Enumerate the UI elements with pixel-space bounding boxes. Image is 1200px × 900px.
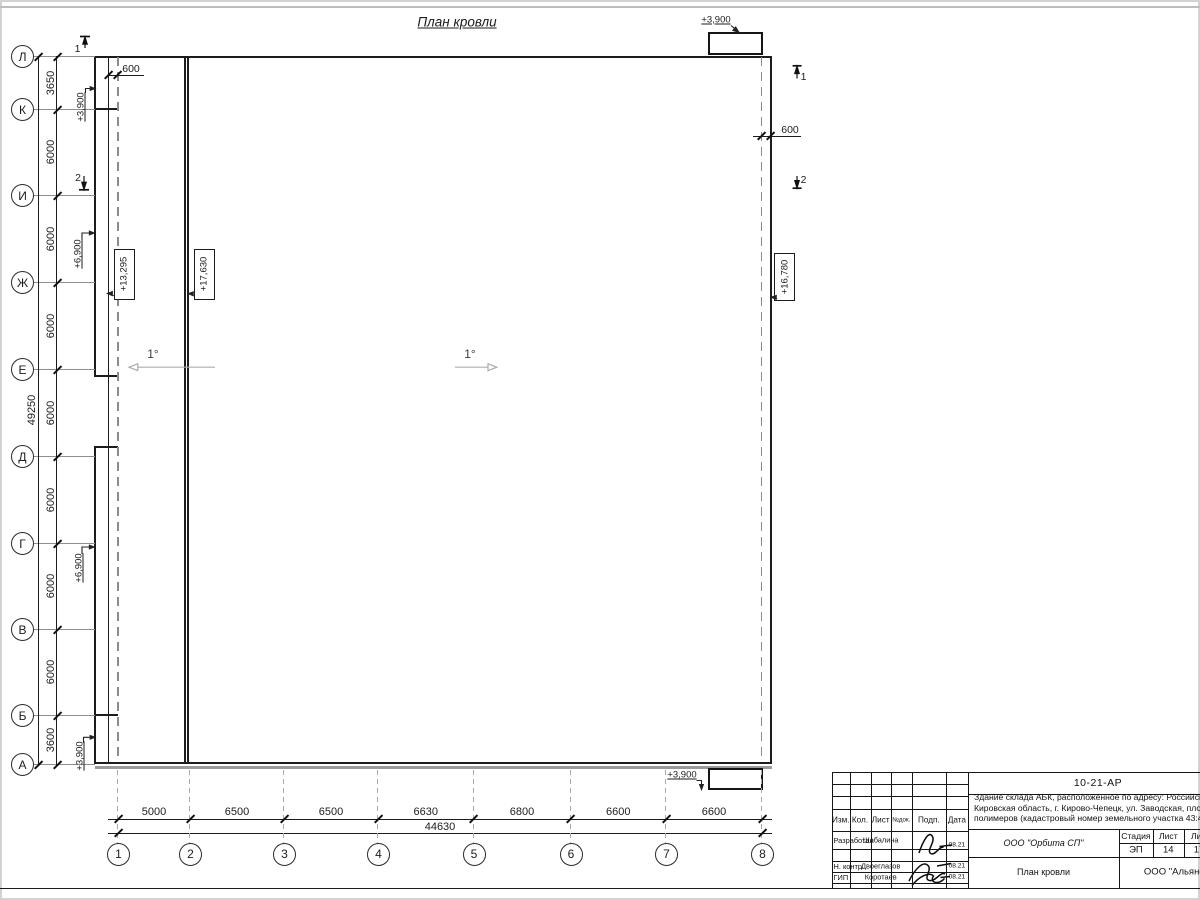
col-dim-label: 6500 (225, 806, 249, 818)
row-axis-label: А (18, 758, 26, 772)
drawing-title: План кровли (417, 15, 496, 30)
dim-600-left-line (107, 75, 144, 76)
col-axis-label: 7 (663, 847, 670, 861)
ext-line-axis-7 (665, 770, 666, 843)
offset-600-left: 600 (122, 63, 140, 75)
row-axis-bubble: В (11, 618, 34, 641)
titleblock-line (832, 809, 968, 810)
tb-desc-line2: Кировская область, г. Кирово-Чепецк, ул.… (974, 803, 1200, 813)
ground-shadow-line (95, 766, 772, 768)
wall-left-main (108, 56, 110, 765)
titleblock-line (968, 829, 1200, 830)
roof-elevation-strip: +13,295 (119, 257, 130, 292)
col-axis-bubble: 6 (560, 843, 583, 866)
col-axis-label: 5 (471, 847, 478, 861)
col-axis-label: 3 (281, 847, 288, 861)
col-axis-bubble: 5 (463, 843, 486, 866)
row-dim-label: 6000 (45, 227, 57, 251)
titleblock-line (832, 831, 968, 832)
wall-step-axis-e (94, 375, 118, 377)
tb-drawing-name: План кровли (1017, 867, 1070, 877)
row-axis-label: Ж (17, 276, 28, 290)
row-dim-label: 6000 (45, 574, 57, 598)
col-dim-label: 6800 (510, 806, 534, 818)
col-axis-bubble: 8 (751, 843, 774, 866)
row-axis-label: Г (19, 537, 26, 551)
axis-line-d (33, 456, 95, 457)
row-axis-bubble: Е (11, 358, 34, 381)
row-axis-bubble: Д (11, 445, 34, 468)
tb-name: Шабалина (863, 835, 899, 844)
row-axis-label: К (19, 103, 26, 117)
col-axis-label: 8 (759, 847, 766, 861)
row-axis-bubble: Г (11, 532, 34, 555)
row-axis-label: Б (19, 709, 27, 723)
slope-arrow-main (455, 364, 497, 371)
wall-right (770, 56, 772, 765)
roof-elevation-low: +16,780 (779, 260, 790, 295)
tb-date: 08.21 (949, 863, 966, 870)
section-mark-1-left: 1 (75, 43, 81, 55)
titleblock-line (1119, 829, 1120, 888)
tb-col-data: Дата (948, 816, 966, 825)
axis-line-i (33, 195, 95, 196)
row-axis-label: Д (18, 450, 26, 464)
col-dim-label: 6600 (702, 806, 726, 818)
roof-elevation-box: +16,780 (774, 253, 795, 301)
offset-600-right: 600 (781, 124, 799, 136)
axis-line-e (33, 369, 95, 370)
tb-date: 08.21 (949, 842, 966, 849)
col-axis-label: 2 (187, 847, 194, 861)
row-dim-label: 3650 (45, 71, 57, 95)
tb-sheets-total: 17 (1194, 844, 1200, 855)
elevation-mid-zh: +6,900 (73, 239, 84, 268)
row-axis-bubble: К (11, 98, 34, 121)
col-dim-label: 5000 (142, 806, 166, 818)
frame-bottom-line (0, 888, 1200, 890)
col-dim-label: 6600 (606, 806, 630, 818)
tb-date: 08.21 (949, 874, 966, 881)
row-axis-bubble: Л (11, 45, 34, 68)
tb-col-ndok: №док. (892, 817, 910, 824)
titleblock-line (968, 857, 1200, 858)
col-axis-label: 4 (375, 847, 382, 861)
axis-line-v (33, 629, 95, 630)
col-dim-label: 6630 (414, 806, 438, 818)
row-axis-bubble: А (11, 753, 34, 776)
col-axis-label: 1 (115, 847, 122, 861)
row-dim-label: 3600 (45, 728, 57, 752)
ext-line-axis-5 (473, 770, 474, 843)
titleblock-line (832, 872, 968, 873)
roof-elevation-box: +17,630 (194, 249, 215, 300)
titleblock-line (832, 772, 1200, 773)
annotation-overlay (0, 0, 1200, 900)
row-dim-label: 6000 (45, 314, 57, 338)
col-axis-bubble: 1 (107, 843, 130, 866)
col-axis-label: 6 (568, 847, 575, 861)
axis-line-b (33, 715, 95, 716)
row-axis-label: Е (18, 363, 26, 377)
tb-name: Двоеглазов (861, 862, 900, 871)
row-dim-label: 6000 (45, 488, 57, 512)
titleblock-line (832, 796, 968, 797)
tb-list-label: Лист (1159, 831, 1178, 841)
tb-col-kol: Кол. (852, 816, 868, 825)
col-total-dim: 44630 (425, 821, 456, 833)
tb-col-podp: Подп. (918, 816, 940, 825)
axis-line-zh (33, 282, 95, 283)
tb-sheet-number: 14 (1163, 844, 1174, 855)
tb-name: Коротаев (865, 873, 897, 882)
tb-desc-line3: полимеров (кадастровый номер земельного … (974, 813, 1200, 823)
axis-line-g (33, 543, 95, 544)
row-axis-label: Л (19, 50, 27, 64)
row-dim-label: 6000 (45, 660, 57, 684)
row-axis-bubble: Б (11, 704, 34, 727)
tb-desc-line1: Здание склада АБК, расположенное по адре… (974, 792, 1200, 802)
slope-label-main: 1° (464, 347, 475, 361)
elevation-entry-k: +3,900 (75, 92, 86, 121)
col-axis-bubble: 3 (273, 843, 296, 866)
row-axis-label: В (18, 623, 26, 637)
tb-col-izm: Изм. (832, 816, 850, 825)
h-dim-line-total (108, 833, 772, 834)
titleblock-line (832, 784, 968, 785)
tb-stage-label: Стадия (1121, 831, 1150, 841)
section-mark-2-left: 2 (75, 172, 81, 184)
axis-8-dashed-line (761, 57, 762, 762)
elevation-entry-a: +3,900 (75, 741, 86, 770)
titleblock-line (832, 849, 968, 850)
section-cut-1-left (80, 37, 90, 49)
wall-left-projection-lower (94, 446, 96, 764)
row-axis-bubble: И (11, 184, 34, 207)
tb-col-list: Лист (872, 816, 890, 825)
tb-doc-number: 10-21-АР (1074, 777, 1122, 789)
wall-step-axis-b (94, 714, 118, 716)
tb-contractor: ООО "Альянс (1144, 867, 1200, 878)
tb-stage-value: ЭП (1129, 844, 1143, 855)
section-mark-1-right: 1 (801, 71, 807, 83)
ext-line-axis-3 (283, 770, 284, 843)
leader-canopy-bottom (697, 781, 704, 790)
sheet-top-edge (0, 6, 1200, 8)
tb-role: ГИП (834, 873, 849, 882)
ext-line-axis-4 (377, 770, 378, 843)
wall-step-axis-d (94, 446, 118, 448)
row-axis-bubble: Ж (11, 271, 34, 294)
canopy-bottom (708, 768, 764, 790)
row-dim-label: 6000 (45, 401, 57, 425)
signature-korotaev (912, 874, 950, 885)
tb-listov-label: Листов (1191, 831, 1200, 841)
elevation-canopy-bottom: +3,900 (667, 770, 696, 781)
row-dim-label: 6000 (45, 140, 57, 164)
leader-elevation-zh (82, 231, 94, 240)
canopy-top (708, 32, 763, 56)
ext-line-axis-6 (570, 770, 571, 843)
axis-1-dashed-line (117, 57, 118, 762)
row-axis-label: И (18, 189, 27, 203)
inner-wall-line-2 (187, 56, 189, 765)
ext-line-axis-2 (189, 770, 190, 843)
roof-elevation-box: +13,295 (114, 249, 135, 300)
slope-label-left: 1° (147, 347, 158, 361)
tb-role: Н. контр. (834, 862, 865, 871)
titleblock-line (832, 883, 968, 884)
drawing-sheet: Л К И Ж Е Д Г В Б А 1 2 3 4 5 6 7 8 3650… (0, 0, 1200, 900)
inner-wall-line-1 (184, 56, 186, 765)
section-mark-2-right: 2 (801, 174, 807, 186)
wall-top (95, 56, 772, 58)
row-total-dim: 49250 (26, 395, 38, 426)
signature-shabalina (919, 835, 952, 854)
col-axis-bubble: 4 (367, 843, 390, 866)
col-axis-bubble: 7 (655, 843, 678, 866)
tb-company: ООО "Орбита СП" (1004, 838, 1084, 848)
wall-left-projection-upper (94, 56, 96, 377)
col-dim-label: 6500 (319, 806, 343, 818)
axis-line-l (33, 56, 95, 57)
col-axis-bubble: 2 (179, 843, 202, 866)
slope-arrow-left (129, 364, 215, 371)
elevation-canopy-top: +3,900 (701, 14, 730, 25)
wall-bottom (95, 762, 772, 764)
roof-elevation-high: +17,630 (199, 257, 210, 292)
wall-step-axis-k (94, 108, 118, 110)
elevation-mid-g: +6,900 (74, 553, 85, 582)
